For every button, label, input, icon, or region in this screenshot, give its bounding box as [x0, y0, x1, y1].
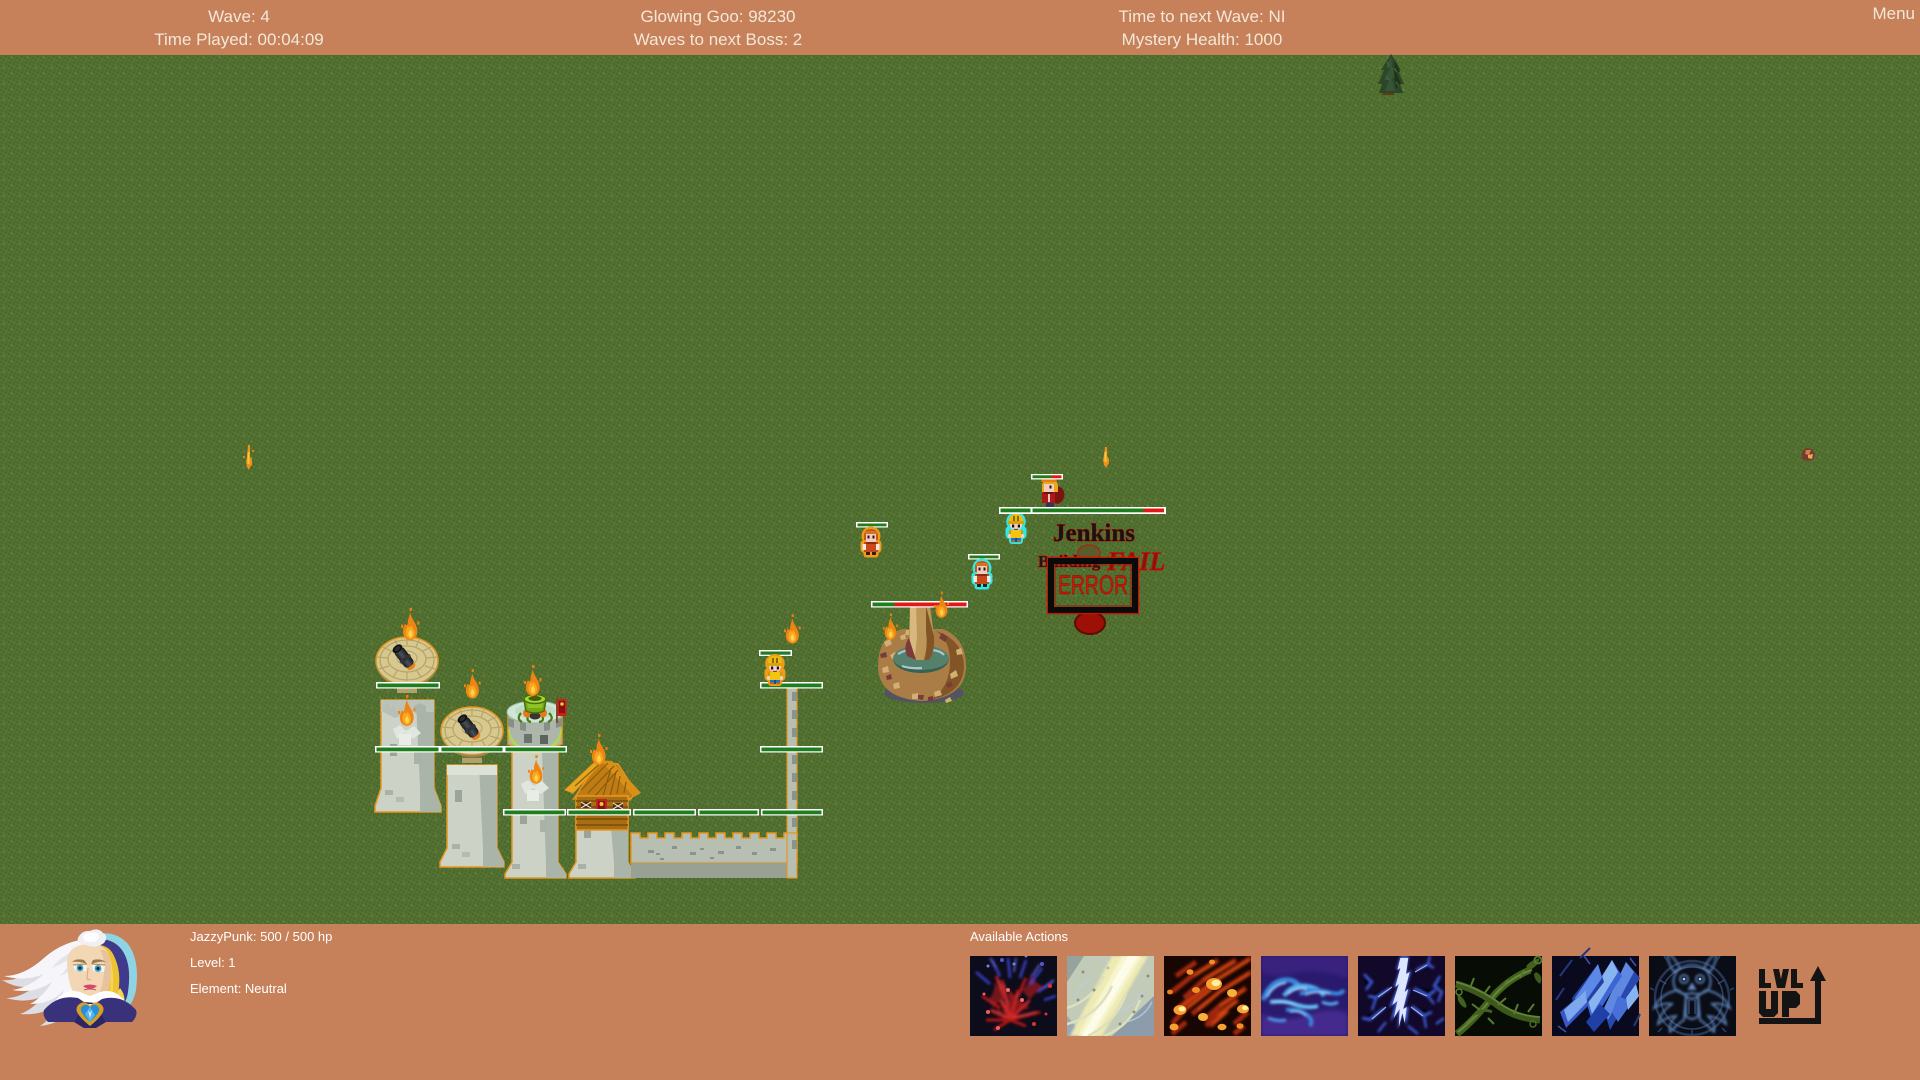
- svg-text:Jenkins: Jenkins: [1053, 520, 1135, 547]
- svg-text:ERROR: ERROR: [1058, 570, 1128, 600]
